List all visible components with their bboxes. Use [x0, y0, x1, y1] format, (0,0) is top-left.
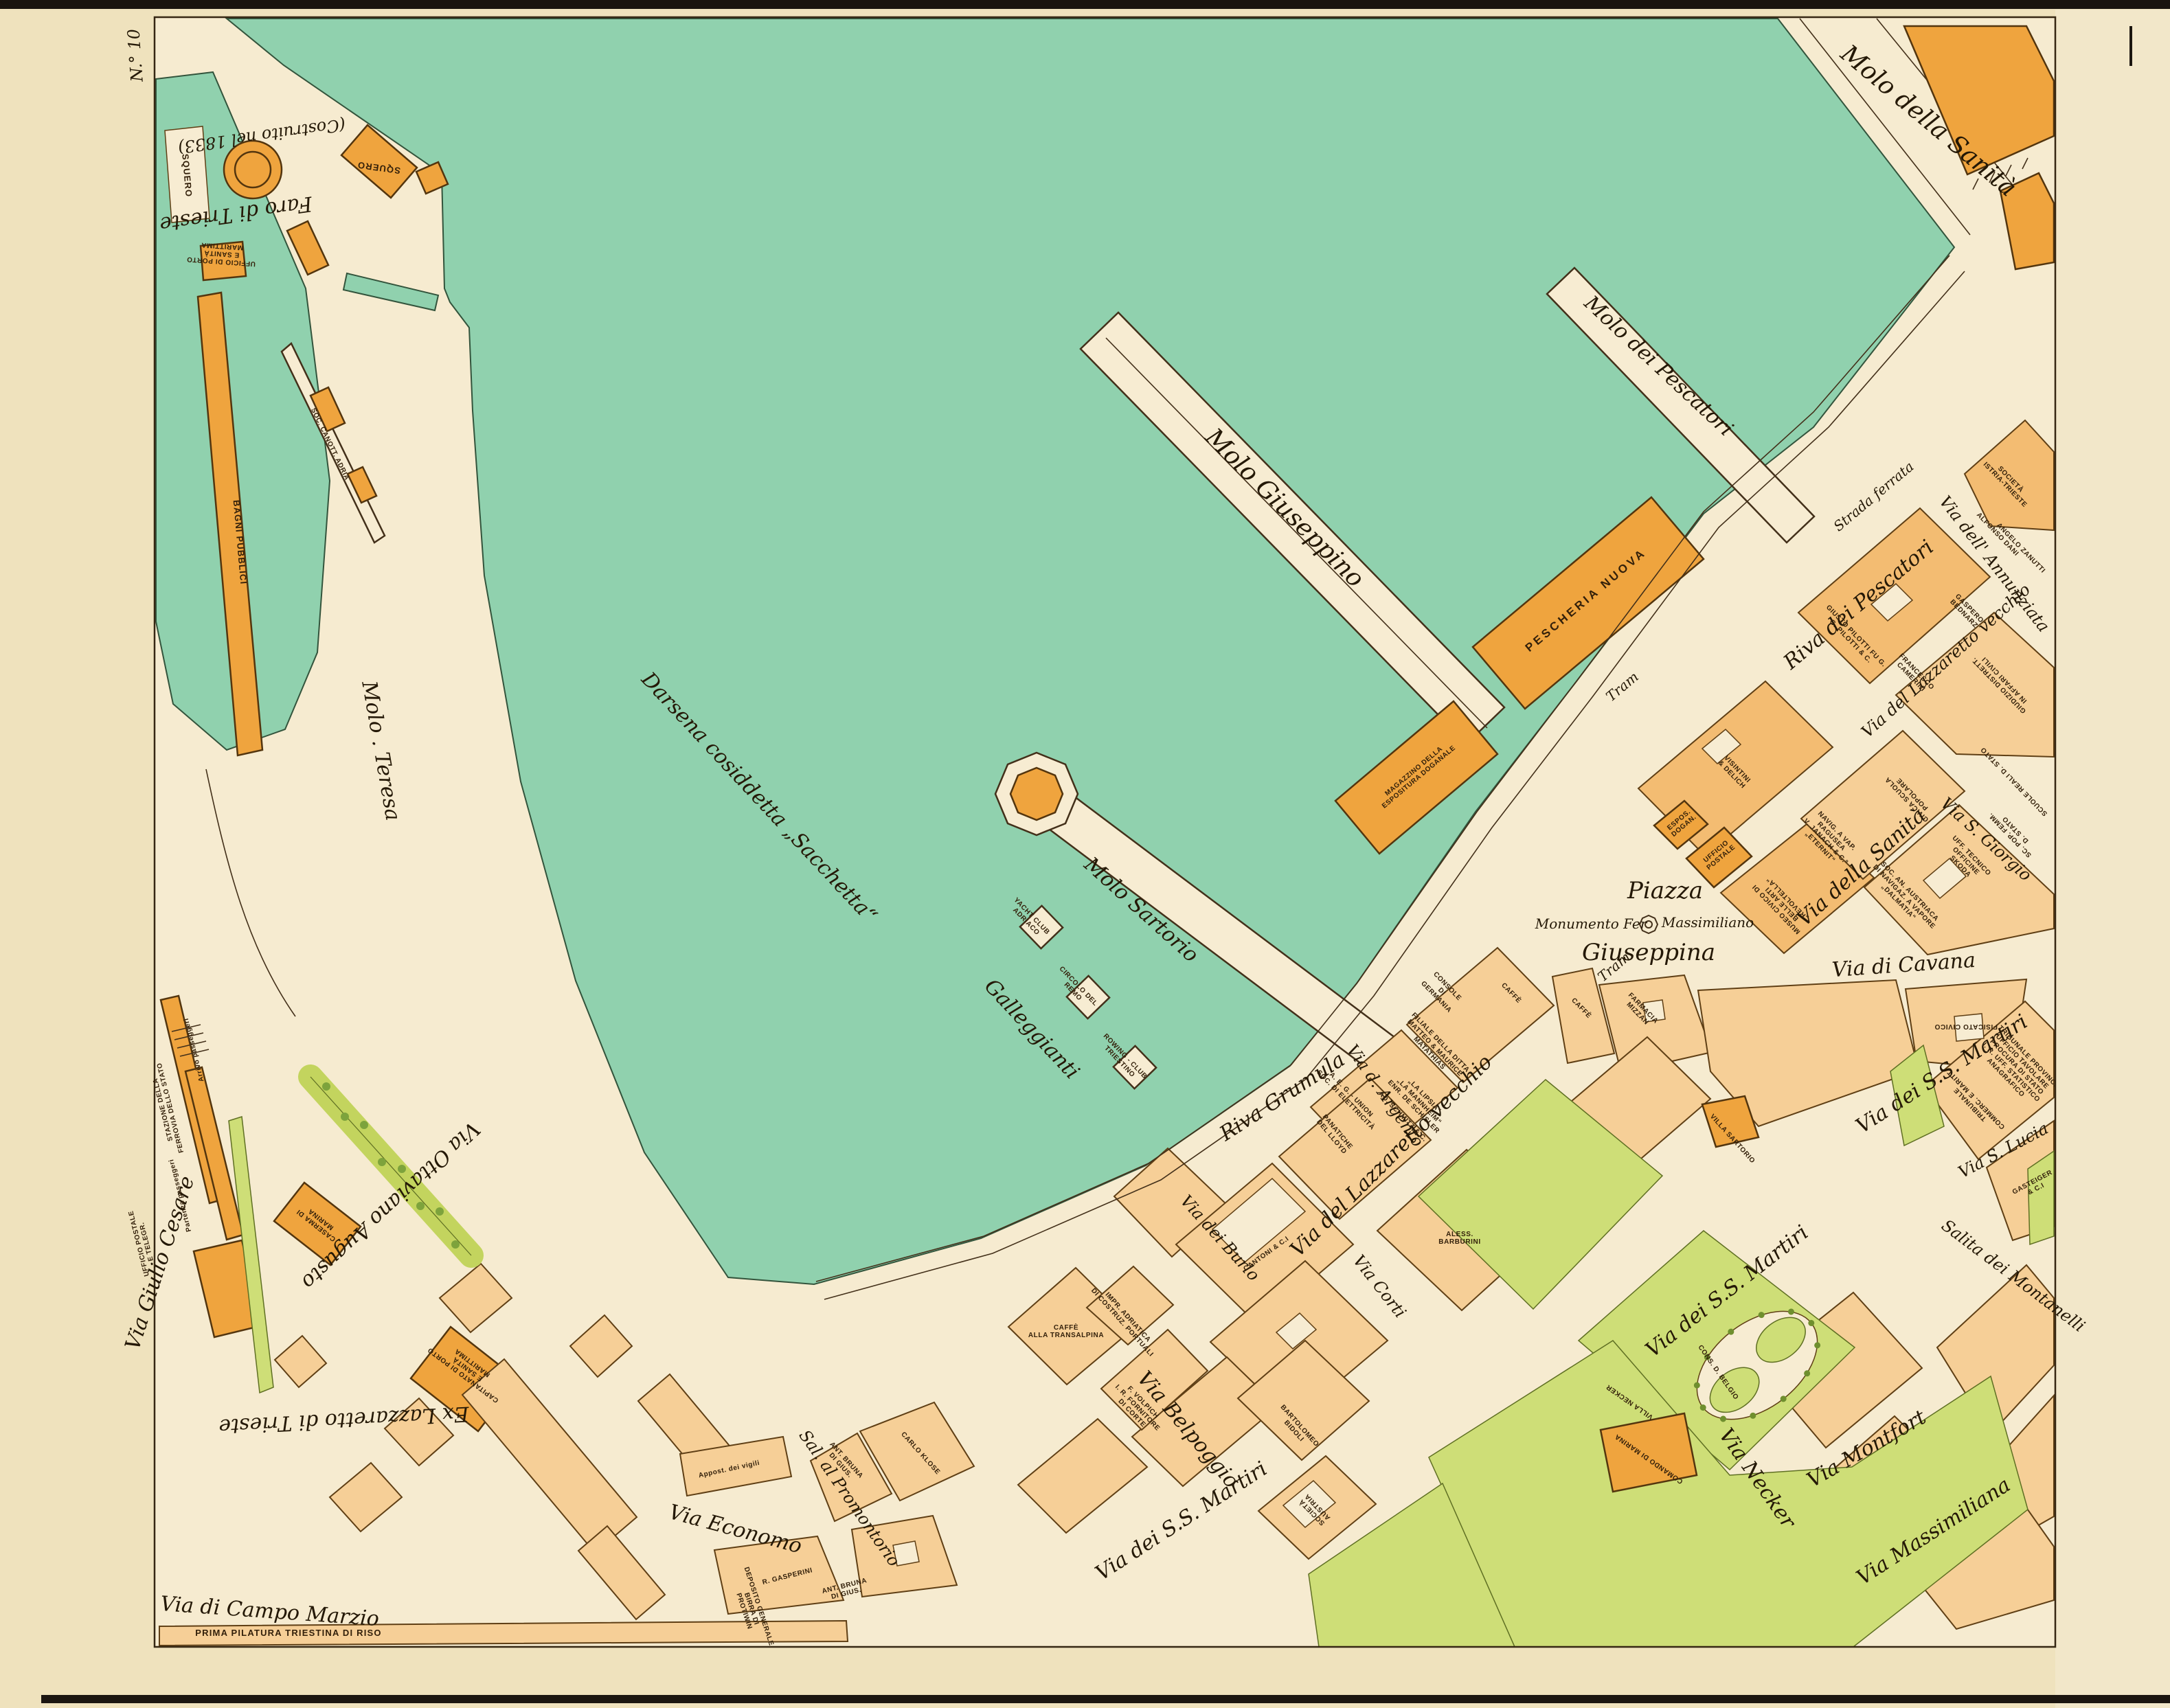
- pier-sartorio-head-building: [1010, 768, 1063, 820]
- map-page: N.° 10 Molo della Sanità Molo dei Pescat…: [0, 0, 2170, 1708]
- page-bottom-edge: [41, 1695, 2170, 1703]
- trieste-harbour-map: N.° 10 Molo della Sanità Molo dei Pescat…: [0, 0, 2170, 1708]
- label-piazza: Piazza: [1627, 877, 1703, 904]
- label-massimiliano: Massimiliano: [1661, 914, 1754, 931]
- label-giuseppina: Giuseppina: [1582, 939, 1715, 966]
- label-monumento: Monumento Fer: [1535, 915, 1648, 932]
- right-margin: [2055, 10, 2170, 1708]
- page-top-edge: [0, 0, 2170, 9]
- label-fisicato: FISICATO CIVICO: [1934, 1023, 1998, 1030]
- sheet-number: N.° 10: [124, 28, 146, 83]
- label-pilatura: PRIMA PILATURA TRIESTINA DI RISO: [195, 1628, 381, 1638]
